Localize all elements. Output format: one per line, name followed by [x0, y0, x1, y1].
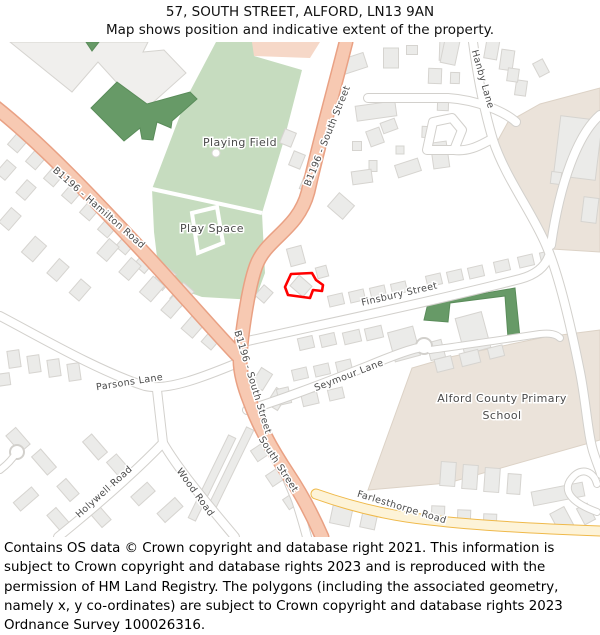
building	[342, 329, 361, 345]
area-label-play-space: Play Space	[180, 222, 244, 235]
building	[0, 373, 11, 388]
building	[396, 146, 404, 154]
building	[83, 434, 108, 460]
building	[67, 363, 81, 382]
building	[493, 259, 510, 273]
building	[407, 46, 418, 55]
building	[313, 363, 330, 377]
building	[32, 449, 57, 475]
field-marker-dot	[212, 149, 220, 157]
building	[291, 367, 308, 381]
road-label-b1196-hamilton-road: B1196 - Hamilton Road	[50, 165, 147, 251]
building	[297, 335, 314, 350]
building	[484, 468, 501, 493]
building	[97, 239, 119, 262]
building	[380, 118, 398, 133]
building	[353, 142, 362, 151]
building	[327, 387, 344, 401]
area-label-school-line1: Alford County Primary	[437, 392, 567, 405]
building	[364, 325, 383, 341]
building	[131, 482, 155, 506]
building	[69, 279, 91, 301]
building	[27, 355, 41, 374]
salmon-ground-patch	[252, 42, 320, 58]
building	[327, 293, 344, 307]
building-complex	[10, 42, 186, 107]
building	[21, 236, 46, 262]
building	[47, 259, 69, 282]
building	[290, 275, 312, 297]
building	[319, 332, 336, 347]
map: B1196 - South Street B1196 - South Stree…	[0, 42, 600, 537]
area-label-school-line2: School	[483, 409, 522, 422]
building	[289, 151, 306, 169]
building	[16, 180, 36, 201]
building	[351, 169, 373, 185]
building	[450, 72, 459, 83]
building	[484, 42, 501, 60]
building	[366, 127, 385, 147]
page-subtitle: Map shows position and indicative extent…	[0, 22, 600, 38]
building	[462, 465, 479, 490]
road-label-south-street: South Street	[256, 435, 300, 495]
building	[13, 487, 38, 511]
building	[57, 479, 79, 502]
building	[355, 101, 397, 121]
building	[533, 59, 550, 77]
building	[507, 474, 521, 495]
building	[499, 49, 515, 71]
building	[395, 158, 422, 178]
building	[286, 245, 305, 266]
building	[467, 265, 484, 279]
building	[0, 208, 21, 231]
building	[428, 68, 442, 83]
building	[384, 48, 399, 68]
building	[47, 359, 61, 378]
copyright-footer: Contains OS data © Crown copyright and d…	[0, 537, 600, 635]
building	[7, 350, 21, 369]
building	[315, 265, 328, 278]
building	[507, 68, 520, 82]
building	[328, 193, 355, 220]
building	[581, 197, 599, 224]
building	[517, 254, 534, 268]
area-label-playing-field: Playing Field	[203, 136, 277, 149]
building	[446, 269, 463, 283]
map-header: 57, SOUTH STREET, ALFORD, LN13 9AN Map s…	[0, 0, 600, 38]
building	[157, 498, 183, 523]
building	[440, 462, 457, 487]
building	[0, 160, 16, 181]
page-title: 57, SOUTH STREET, ALFORD, LN13 9AN	[0, 4, 600, 20]
